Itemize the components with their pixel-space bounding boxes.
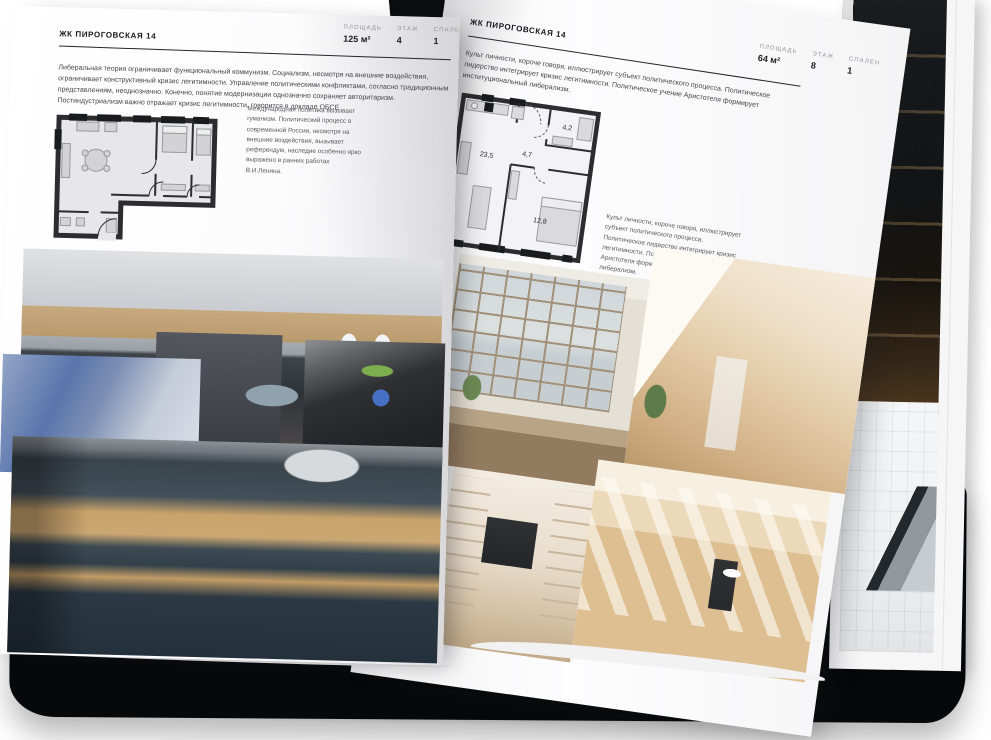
stat-value: 8 — [810, 60, 833, 73]
plan-stove — [484, 102, 494, 112]
plan-entrance-gap — [98, 232, 116, 240]
stat-area: ПЛОЩАДЬ 64 м² — [757, 44, 798, 68]
left-page: ЖК ПИРОГОВСКАЯ 14 ПЛОЩАДЬ 125 м² ЭТАЖ 4 … — [0, 6, 460, 666]
stat-label: ЭТАЖ — [397, 26, 419, 33]
stat-value: 64 м² — [757, 53, 796, 68]
photo-attic-room — [624, 247, 875, 494]
room-area-bath: 4,2 — [562, 124, 573, 132]
photo-bathroom — [839, 401, 938, 653]
stat-value: 1 — [847, 65, 880, 79]
stat-bedrooms: СПАЛЕН 1 — [847, 56, 881, 79]
floor-plan-left — [50, 101, 222, 245]
stat-floor: ЭТАЖ 4 — [397, 26, 419, 46]
stat-value: 4 — [397, 35, 419, 46]
right-stats-block: ПЛОЩАДЬ 64 м² ЭТАЖ 8 СПАЛЕН 1 — [757, 44, 880, 80]
stat-label: СПАЛЕН — [434, 27, 460, 34]
photo-dark-kitchen — [7, 436, 443, 663]
stat-bedrooms: СПАЛЕН 1 — [433, 27, 460, 47]
left-page-title: ЖК ПИРОГОВСКАЯ 14 — [59, 29, 156, 41]
floor-plan-right: 23,5 4,7 4,2 12,8 — [434, 84, 608, 270]
left-note-text: Международная политика вызывает гуманизм… — [246, 104, 368, 179]
stat-value: 1 — [433, 36, 460, 47]
stat-area: ПЛОЩАДЬ 125 м² — [343, 25, 382, 45]
left-stats-block: ПЛОЩАДЬ 125 м² ЭТАЖ 4 СПАЛЕН 1 — [343, 25, 460, 47]
stat-label: ЭТАЖ — [812, 51, 834, 60]
plan-sink — [471, 102, 478, 109]
photo-loft-windows — [430, 253, 650, 490]
right-page-title: ЖК ПИРОГОВСКАЯ 14 — [470, 17, 567, 39]
book-mockup-scene: ЖК ПИРОГОВСКАЯ 14 ПЛОЩАДЬ 64 м² ЭТАЖ 8 С… — [0, 0, 991, 740]
stat-value: 125 м² — [343, 34, 382, 45]
stat-label: ПЛОЩАДЬ — [343, 25, 382, 32]
left-header-rule — [59, 46, 451, 61]
stat-floor: ЭТАЖ 8 — [810, 51, 834, 73]
photo-shelf-living-room — [429, 466, 594, 662]
room-area-hall: 4,7 — [522, 151, 533, 159]
